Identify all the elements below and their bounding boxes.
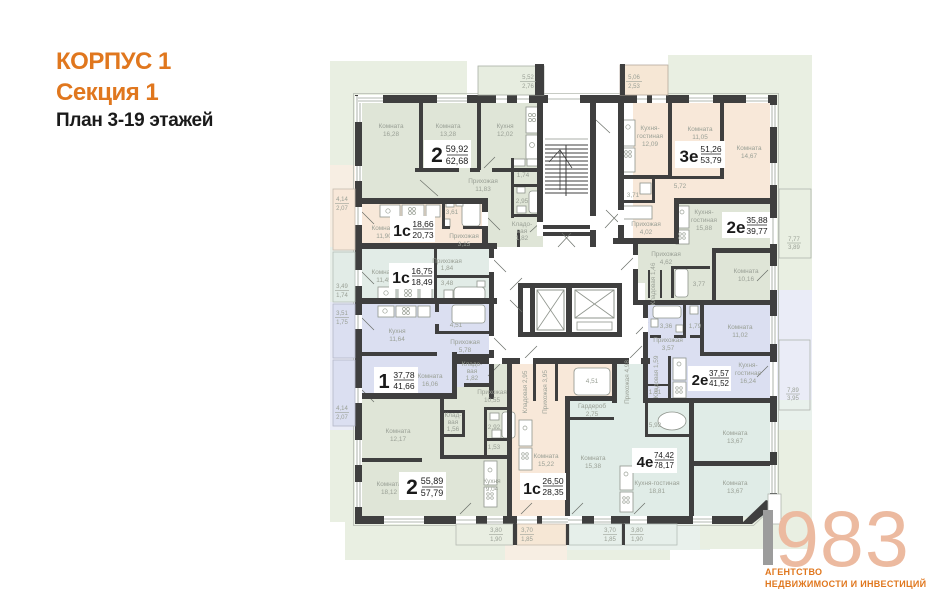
svg-text:5,78: 5,78 bbox=[459, 347, 472, 354]
svg-text:Комната: Комната bbox=[435, 123, 460, 130]
svg-text:11,83: 11,83 bbox=[475, 186, 491, 193]
svg-text:2е: 2е bbox=[727, 218, 746, 237]
svg-text:1,74: 1,74 bbox=[336, 293, 348, 299]
svg-text:13,28: 13,28 bbox=[440, 131, 456, 138]
svg-text:Комната: Комната bbox=[580, 455, 605, 462]
svg-text:3,70: 3,70 bbox=[521, 528, 533, 534]
svg-text:гостиная: гостиная bbox=[735, 370, 762, 377]
svg-text:41,66: 41,66 bbox=[393, 381, 415, 391]
svg-text:1с: 1с bbox=[392, 270, 410, 287]
svg-text:1,74: 1,74 bbox=[517, 172, 530, 179]
svg-text:11,90: 11,90 bbox=[376, 233, 392, 240]
svg-text:15,38: 15,38 bbox=[585, 463, 601, 470]
svg-text:15,22: 15,22 bbox=[538, 461, 554, 468]
svg-text:12,17: 12,17 bbox=[390, 436, 406, 443]
svg-text:1,53: 1,53 bbox=[488, 444, 501, 451]
svg-text:1,56: 1,56 bbox=[447, 426, 460, 433]
svg-text:Кладо-: Кладо- bbox=[512, 221, 532, 228]
svg-text:3,48: 3,48 bbox=[441, 280, 454, 287]
svg-text:26,50: 26,50 bbox=[542, 476, 564, 486]
svg-text:5,06: 5,06 bbox=[628, 75, 640, 81]
svg-text:3,61: 3,61 bbox=[446, 209, 459, 216]
svg-text:Комната: Комната bbox=[733, 268, 758, 275]
svg-text:20,73: 20,73 bbox=[412, 230, 434, 240]
svg-text:2,92: 2,92 bbox=[488, 424, 501, 431]
svg-text:Кухня-: Кухня- bbox=[694, 209, 713, 216]
svg-text:18,81: 18,81 bbox=[649, 488, 665, 495]
svg-text:2: 2 bbox=[406, 476, 418, 499]
svg-text:18,66: 18,66 bbox=[412, 219, 434, 229]
svg-text:1,82: 1,82 bbox=[516, 235, 529, 242]
svg-text:1,61: 1,61 bbox=[649, 389, 662, 396]
svg-text:Комната: Комната bbox=[376, 481, 401, 488]
svg-text:3е: 3е bbox=[680, 147, 699, 166]
svg-text:55,89: 55,89 bbox=[421, 476, 444, 486]
svg-text:2,53: 2,53 bbox=[628, 84, 640, 90]
svg-text:5,72: 5,72 bbox=[674, 183, 687, 190]
svg-text:2,75: 2,75 bbox=[586, 411, 599, 418]
svg-text:4,14: 4,14 bbox=[336, 406, 348, 412]
svg-text:Прихожая: Прихожая bbox=[477, 389, 507, 396]
svg-text:2,95: 2,95 bbox=[516, 198, 529, 205]
svg-text:1с: 1с bbox=[393, 223, 411, 240]
svg-text:4,62: 4,62 bbox=[660, 259, 673, 266]
svg-text:62,68: 62,68 bbox=[446, 156, 469, 166]
svg-text:37,78: 37,78 bbox=[393, 370, 415, 380]
svg-text:12,02: 12,02 bbox=[497, 131, 513, 138]
svg-text:Прихожая: Прихожая bbox=[631, 221, 661, 228]
svg-text:Кухня: Кухня bbox=[483, 478, 501, 485]
svg-text:16,24: 16,24 bbox=[740, 378, 756, 385]
svg-text:10,55: 10,55 bbox=[484, 397, 500, 404]
svg-text:Кладовая 2,95: Кладовая 2,95 bbox=[522, 370, 529, 413]
svg-text:Прихожая: Прихожая bbox=[653, 337, 683, 344]
svg-text:3,71: 3,71 bbox=[627, 192, 640, 199]
svg-text:3,57: 3,57 bbox=[662, 345, 675, 352]
svg-text:Кухня: Кухня bbox=[388, 328, 406, 335]
svg-text:59,92: 59,92 bbox=[446, 144, 469, 154]
svg-text:3,95: 3,95 bbox=[787, 396, 799, 402]
svg-text:37,57: 37,57 bbox=[709, 369, 730, 378]
svg-text:1,79: 1,79 bbox=[689, 323, 702, 330]
svg-text:1,84: 1,84 bbox=[441, 265, 454, 272]
svg-text:4,14: 4,14 bbox=[336, 197, 348, 203]
svg-text:Прихожая 4,98: Прихожая 4,98 bbox=[624, 360, 631, 404]
svg-text:16,28: 16,28 bbox=[383, 131, 399, 138]
svg-text:1,90: 1,90 bbox=[490, 537, 502, 543]
svg-text:1: 1 bbox=[378, 371, 389, 393]
svg-text:16,75: 16,75 bbox=[411, 266, 433, 276]
svg-text:4е: 4е bbox=[637, 454, 654, 471]
svg-text:1с: 1с bbox=[523, 481, 541, 498]
svg-text:39,77: 39,77 bbox=[746, 226, 768, 236]
svg-text:9,04: 9,04 bbox=[486, 486, 499, 493]
svg-text:16,06: 16,06 bbox=[422, 381, 438, 388]
svg-text:5,92: 5,92 bbox=[649, 422, 662, 429]
svg-text:13,67: 13,67 bbox=[727, 438, 743, 445]
svg-text:2,76: 2,76 bbox=[522, 84, 534, 90]
svg-text:1,75: 1,75 bbox=[336, 320, 348, 326]
svg-text:78,17: 78,17 bbox=[654, 461, 675, 470]
svg-text:Кладо-: Кладо- bbox=[462, 361, 482, 368]
svg-text:Кухня-: Кухня- bbox=[738, 362, 757, 369]
svg-text:Комната: Комната bbox=[378, 123, 403, 130]
svg-text:Прихожая: Прихожая bbox=[432, 258, 462, 265]
svg-text:Кухня-: Кухня- bbox=[640, 125, 659, 132]
svg-text:13,67: 13,67 bbox=[727, 488, 743, 495]
svg-text:28,35: 28,35 bbox=[542, 487, 564, 497]
svg-text:7,89: 7,89 bbox=[787, 388, 799, 394]
svg-text:вая: вая bbox=[517, 228, 528, 235]
svg-text:51,26: 51,26 bbox=[700, 144, 722, 154]
svg-text:4,51: 4,51 bbox=[450, 322, 463, 329]
svg-text:41,52: 41,52 bbox=[709, 379, 730, 388]
svg-text:12,09: 12,09 bbox=[642, 141, 658, 148]
svg-text:Прихожая: Прихожая bbox=[468, 178, 498, 185]
svg-text:3,51: 3,51 bbox=[336, 311, 348, 317]
svg-text:2,07: 2,07 bbox=[336, 206, 348, 212]
svg-text:Кладовая 1,46: Кладовая 1,46 bbox=[650, 262, 657, 305]
svg-text:1,90: 1,90 bbox=[631, 537, 643, 543]
svg-text:гостиная: гостиная bbox=[691, 217, 718, 224]
svg-text:5,52: 5,52 bbox=[522, 75, 534, 81]
svg-text:Прихожая: Прихожая bbox=[450, 339, 480, 346]
svg-text:Комната: Комната bbox=[722, 430, 747, 437]
svg-text:Прихожая 3,95: Прихожая 3,95 bbox=[542, 370, 549, 414]
svg-text:11,64: 11,64 bbox=[389, 336, 405, 343]
svg-text:3,49: 3,49 bbox=[336, 284, 348, 290]
svg-text:53,79: 53,79 bbox=[700, 155, 722, 165]
svg-text:Комната: Комната bbox=[533, 453, 558, 460]
svg-text:10,16: 10,16 bbox=[738, 276, 754, 283]
svg-text:11,05: 11,05 bbox=[692, 134, 708, 141]
svg-text:15,88: 15,88 bbox=[696, 225, 712, 232]
svg-text:11,02: 11,02 bbox=[732, 332, 748, 339]
svg-text:вая: вая bbox=[467, 368, 478, 375]
svg-text:Комната: Комната bbox=[727, 324, 752, 331]
svg-text:Комната: Комната bbox=[722, 480, 747, 487]
svg-text:74,42: 74,42 bbox=[654, 451, 675, 460]
svg-text:7,77: 7,77 bbox=[788, 237, 800, 243]
svg-text:Гардероб: Гардероб bbox=[578, 402, 606, 410]
svg-text:18,12: 18,12 bbox=[381, 489, 397, 496]
svg-text:3,77: 3,77 bbox=[693, 281, 706, 288]
svg-text:14,67: 14,67 bbox=[741, 153, 757, 160]
svg-text:3,36: 3,36 bbox=[660, 323, 673, 330]
svg-text:1,85: 1,85 bbox=[604, 537, 616, 543]
svg-text:3,80: 3,80 bbox=[490, 528, 502, 534]
svg-text:Комната: Комната bbox=[736, 145, 761, 152]
svg-text:гостиная: гостиная bbox=[637, 133, 664, 140]
svg-text:18,49: 18,49 bbox=[411, 277, 433, 287]
svg-text:2е: 2е bbox=[692, 372, 709, 389]
svg-text:1,85: 1,85 bbox=[521, 537, 533, 543]
svg-text:Кухня: Кухня bbox=[496, 123, 514, 130]
svg-text:2,07: 2,07 bbox=[336, 415, 348, 421]
svg-text:4,02: 4,02 bbox=[640, 229, 653, 236]
svg-text:3,70: 3,70 bbox=[604, 528, 616, 534]
svg-text:1,82: 1,82 bbox=[466, 375, 479, 382]
svg-text:вая: вая bbox=[448, 419, 459, 426]
svg-text:Клад-: Клад- bbox=[445, 412, 462, 419]
svg-text:57,79: 57,79 bbox=[421, 488, 444, 498]
svg-text:Комната: Комната bbox=[687, 126, 712, 133]
svg-text:Комната: Комната bbox=[385, 428, 410, 435]
svg-text:3,15: 3,15 bbox=[458, 241, 471, 248]
svg-text:4,51: 4,51 bbox=[586, 378, 599, 385]
svg-text:Комната: Комната bbox=[417, 373, 442, 380]
svg-text:35,88: 35,88 bbox=[746, 215, 768, 225]
svg-text:Прихожая: Прихожая bbox=[651, 251, 681, 258]
svg-text:3,80: 3,80 bbox=[631, 528, 643, 534]
svg-text:Кухня-гостиная: Кухня-гостиная bbox=[634, 480, 680, 487]
svg-text:2: 2 bbox=[431, 144, 443, 167]
svg-text:3,89: 3,89 bbox=[788, 245, 800, 251]
svg-text:Прихожая: Прихожая bbox=[449, 233, 479, 240]
